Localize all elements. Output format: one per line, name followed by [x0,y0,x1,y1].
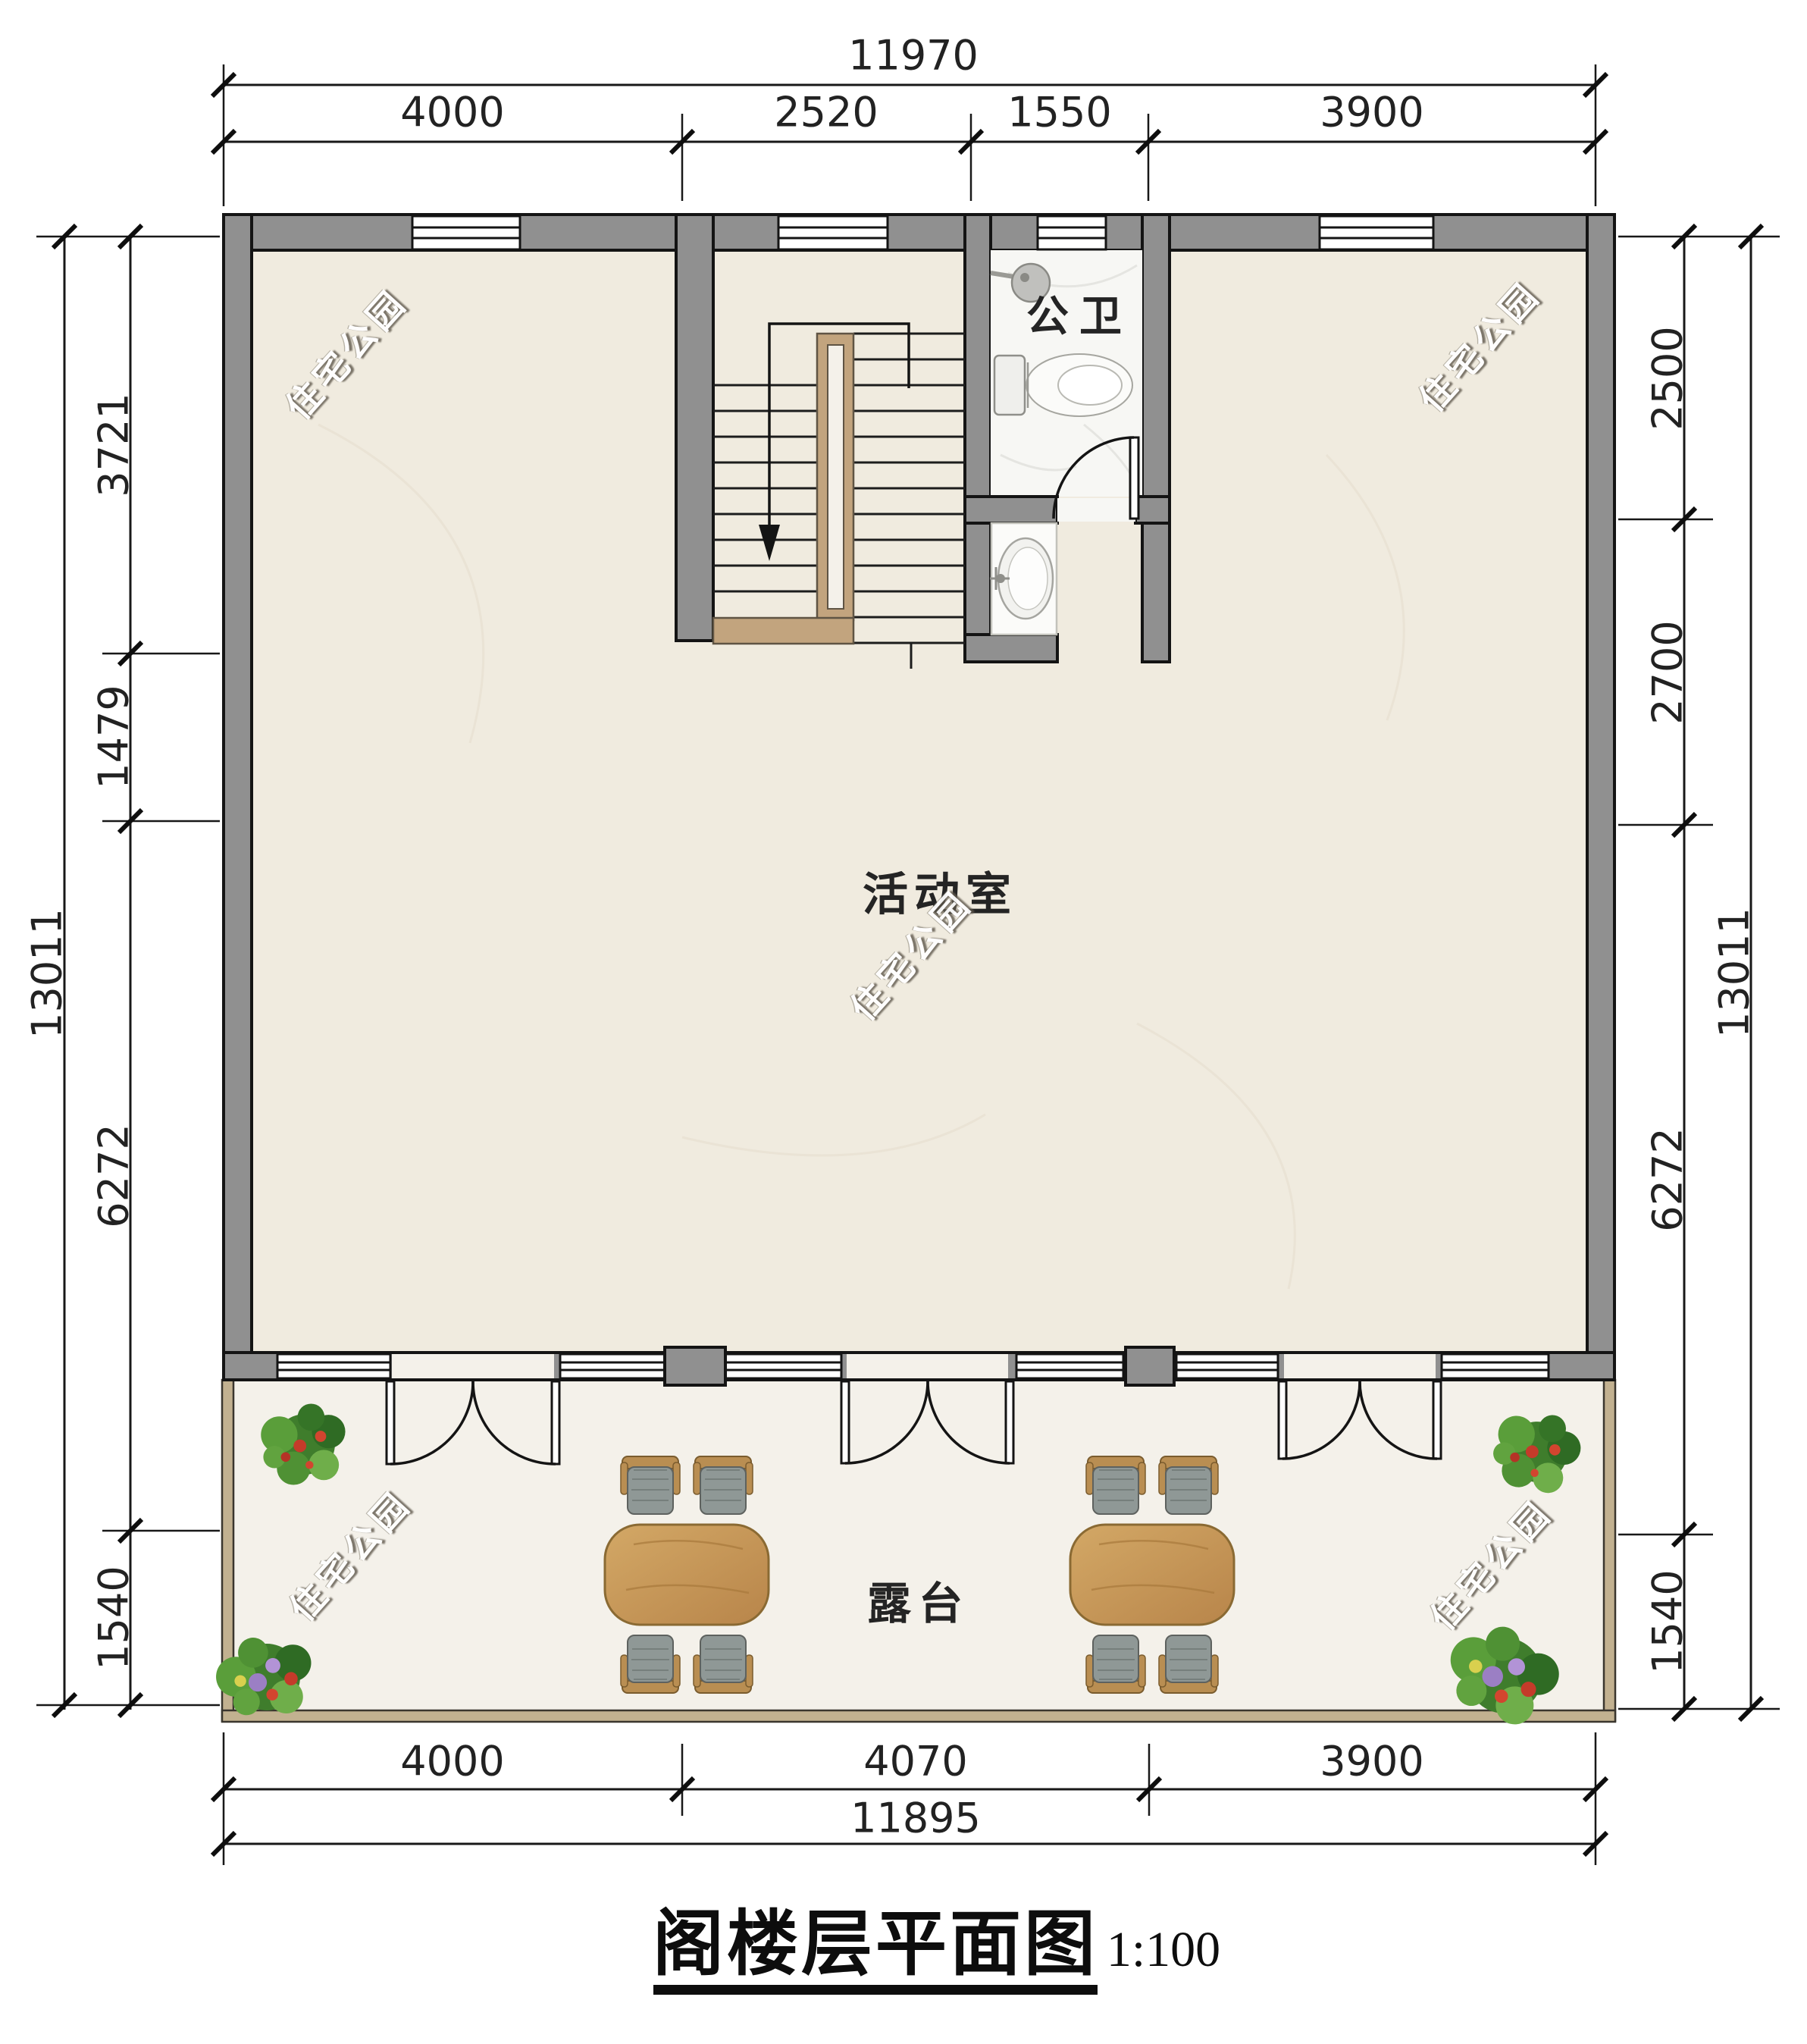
bathroom-right-wall [1142,215,1170,662]
stairwell-left-wall [676,215,713,641]
dim-bottom-seg-2: 4070 [863,1738,967,1785]
drawing-scale: 1:100 [1107,1921,1220,1979]
left-wall [224,215,252,1380]
dim-left-seg-2: 1479 [90,685,138,788]
window [560,1354,665,1378]
dim-top-seg-1: 4000 [400,89,504,136]
dim-right-seg-1: 2500 [1644,326,1692,430]
dim-bottom-overall: 11895 [850,1795,981,1842]
window [1016,1354,1123,1378]
dim-right-seg-4: 1540 [1644,1569,1692,1673]
dim-left-seg-1: 3721 [90,393,138,497]
window [1442,1354,1549,1378]
terrace-floor [233,1380,1604,1710]
bathroom-door-jamb [1135,497,1170,523]
window [412,216,520,249]
sink-niche-wall [965,635,1057,662]
dim-left-overall: 13011 [23,908,71,1039]
toilet-icon [994,354,1132,416]
stairwell-right-wall [965,215,991,662]
dim-top-seg-3: 1550 [1007,89,1111,136]
dim-right-seg-2: 2700 [1644,620,1692,724]
room-label-terrace: 露台 [867,1568,970,1632]
activity-room-floor [252,250,1587,1353]
wall-pier [1126,1347,1174,1385]
door-leaf [1130,437,1138,519]
dim-bottom-seg-3: 3900 [1320,1738,1423,1785]
dim-top-seg-2: 2520 [774,89,878,136]
floor-plan: 11970 4000 2520 1550 3900 4000 4070 3900… [0,0,1807,2044]
dim-left-seg-3: 6272 [90,1124,138,1227]
bathroom-bottom-wall [965,497,1057,523]
page-title: 阁楼层平面图 [653,1886,1098,1989]
dim-left-seg-4: 1540 [90,1566,138,1669]
wall-pier [665,1347,725,1385]
window [725,1354,841,1378]
dim-bottom-seg-1: 4000 [400,1738,504,1785]
room-label-bathroom: 公卫 [1026,283,1132,344]
window [1320,216,1433,249]
window [1038,216,1106,249]
window [1176,1354,1278,1378]
window [277,1354,390,1378]
sink-icon [990,523,1057,635]
dim-right-overall: 13011 [1711,908,1758,1038]
window [778,216,888,249]
dim-top-overall: 11970 [848,32,979,80]
right-wall [1587,215,1614,1380]
title-underline [653,1985,1098,1995]
dim-right-seg-3: 6272 [1644,1127,1692,1231]
dim-top-seg-4: 3900 [1320,89,1423,136]
